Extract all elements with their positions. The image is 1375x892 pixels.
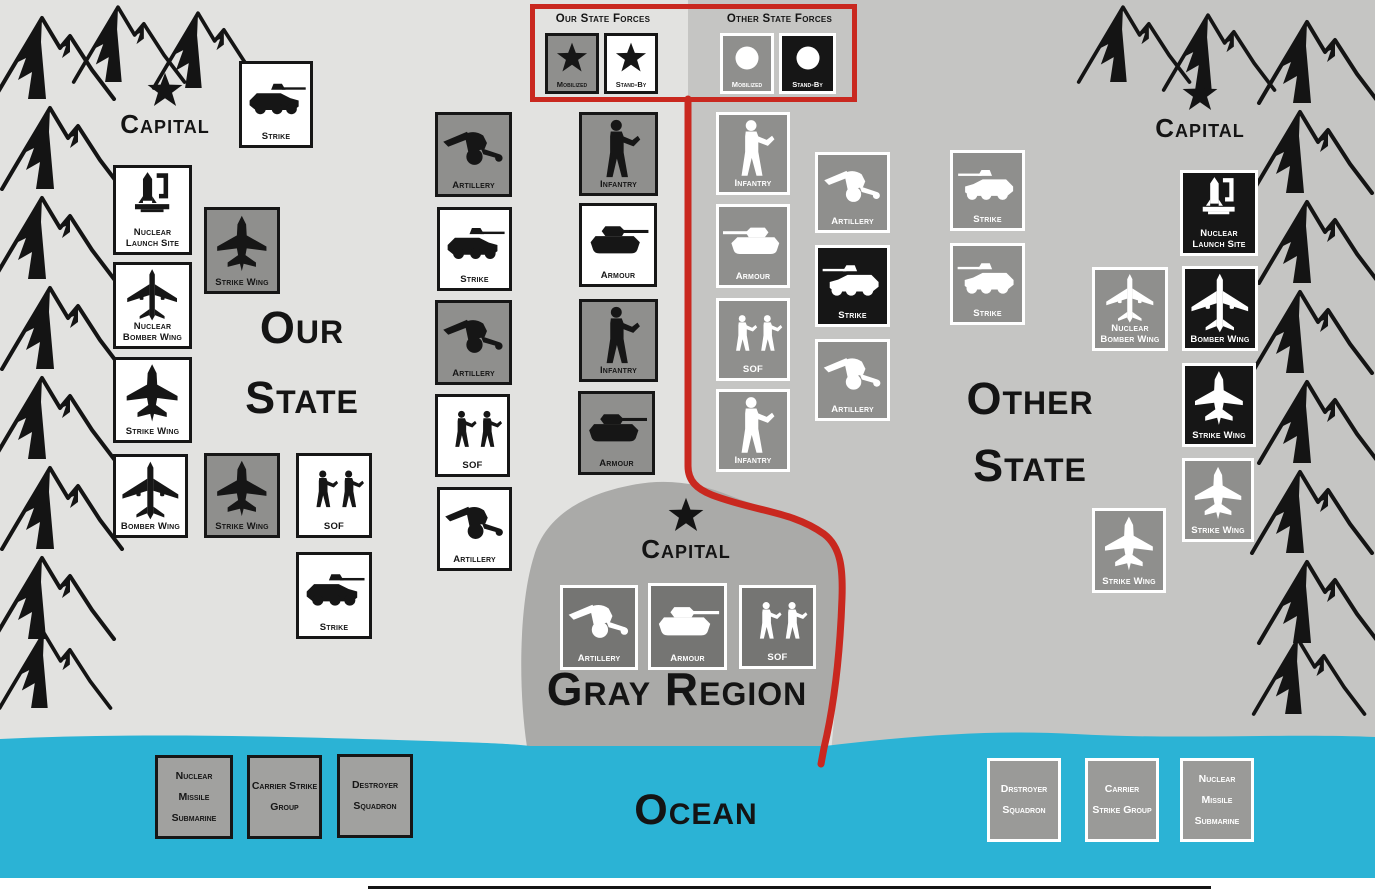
sof-icon [723,304,783,365]
unit-label: Nuclear Bomber Wing [116,322,189,346]
circle-icon [723,36,771,80]
bomber-wing-unit: Nuclear Bomber Wing [1092,267,1168,351]
ocean-label: Ocean [597,786,795,835]
legend-our-mobilized-swatch: Mobilized [545,33,599,94]
naval-unit-label-line: Strike Group [1092,800,1151,821]
capital-marker: Capital [620,497,752,565]
unit-label: Nuclear Launch Site [1183,229,1255,253]
legend: Our State Forces Other State Forces Mobi… [530,4,857,102]
unit-label: Strike [440,275,509,288]
unit-label: Infantry [719,456,787,469]
nuclear-launch-unit: Nuclear Launch Site [113,165,192,255]
unit-label: Infantry [582,366,655,379]
strike-wing-icon [1099,514,1159,577]
armour-icon [585,397,647,459]
artillery-icon [444,493,505,555]
infantry-icon [586,118,650,180]
strike-icon [822,251,883,311]
artillery-unit: Artillery [815,339,890,421]
strike-unit: Strike [296,552,372,639]
legend-swatch-label: Stand-By [782,80,833,91]
bomber-wing-icon [1099,273,1161,324]
unit-label: Artillery [818,217,887,230]
armour-unit: Armour [716,204,790,288]
naval-unit: CarrierStrike Group [1085,758,1159,842]
infantry-icon [723,395,783,456]
naval-unit-label-line: Drstroyer [1001,779,1047,800]
artillery-icon [442,118,504,181]
sof-unit: SOF [739,585,816,669]
naval-unit-label-line: Squadron [353,796,396,817]
unit-label: SOF [719,365,787,378]
unit-label: Strike [953,215,1022,228]
armour-icon [723,210,783,272]
strike-wing-unit: Strike Wing [1092,508,1166,593]
naval-unit: DestroyerSquadron [337,754,413,838]
star-icon [145,72,185,109]
naval-unit-label-line: Squadron [1002,800,1045,821]
bomber-wing-unit: Nuclear Bomber Wing [113,262,192,349]
strike-unit: Strike [950,243,1025,325]
strike-wing-icon [211,459,273,522]
naval-unit: NuclearMissileSubmarine [155,755,233,839]
unit-label: Armour [719,272,787,285]
strike-icon [444,213,505,275]
infantry-icon [723,118,783,179]
bottom-rule [368,886,1211,889]
strike-unit: Strike [950,150,1025,231]
strike-wing-unit: Strike Wing [113,357,192,443]
artillery-icon [822,345,883,405]
star-icon [548,36,596,80]
unit-label: Artillery [818,405,887,418]
unit-label: Nuclear Launch Site [116,228,189,252]
strike-wing-unit: Strike Wing [204,453,280,538]
naval-unit-label-line: Missile [1202,790,1233,811]
bomber-wing-icon [120,268,184,322]
legend-swatch-label: Stand-By [607,80,655,91]
legend-other-standby-swatch: Stand-By [779,33,836,94]
armour-icon [655,589,719,654]
strike-icon [303,558,365,623]
capital-marker: Capital [1135,76,1265,144]
capital-label: Capital [620,534,752,565]
strike-wing-icon [120,363,184,427]
gray-region-label: Gray Region [527,662,827,716]
strike-wing-icon [1189,464,1247,526]
circle-icon [782,36,833,80]
unit-label: Artillery [438,181,509,194]
unit-label: Bomber Wing [116,522,185,535]
artillery-unit: Artillery [560,585,638,670]
naval-unit-label-line: Carrier [1105,779,1139,800]
our-state-label: Our State [218,293,386,433]
unit-label: Artillery [563,654,635,667]
armour-unit: Armour [579,203,657,287]
strike-wing-unit: Strike Wing [204,207,280,294]
capital-marker: Capital [100,72,230,140]
infantry-unit: Infantry [716,112,790,195]
artillery-icon [567,591,630,654]
unit-label: Armour [582,271,654,284]
bomber-wing-icon [120,460,181,522]
sof-icon [746,591,808,653]
legend-other-mobilized-swatch: Mobilized [720,33,774,94]
infantry-unit: Infantry [579,112,658,196]
unit-label: Strike Wing [116,427,189,440]
legend-swatch-label: Mobilized [723,80,771,91]
unit-label: Artillery [440,555,509,568]
unit-label: Strike Wing [1185,526,1251,539]
naval-unit: NuclearMissileSubmarine [1180,758,1254,842]
bottom-margin [0,878,1375,892]
unit-label: Nuclear Bomber Wing [1095,324,1165,348]
infantry-unit: Infantry [579,299,658,382]
strike-unit: Strike [239,61,313,148]
unit-label: Strike Wing [1185,431,1253,444]
unit-label: Strike [818,311,887,324]
sof-unit: SOF [435,394,510,477]
strike-unit: Strike [437,207,512,291]
strike-wing-unit: Strike Wing [1182,363,1256,447]
artillery-unit: Artillery [815,152,890,233]
sof-unit: SOF [716,298,790,381]
sof-icon [442,400,503,461]
unit-label: Infantry [719,179,787,192]
naval-unit: DrstroyerSquadron [987,758,1061,842]
unit-label: Strike [242,132,310,145]
capital-label: Capital [100,109,230,140]
artillery-unit: Artillery [435,300,512,385]
strike-icon [246,67,306,132]
bomber-wing-unit: Bomber Wing [1182,266,1258,351]
strike-wing-unit: Strike Wing [1182,458,1254,542]
artillery-unit: Artillery [435,112,512,197]
infantry-icon [586,305,650,366]
naval-unit-label-line: Missile [179,787,210,808]
strike-wing-icon [211,213,273,278]
infantry-unit: Infantry [716,389,790,472]
star-icon [1180,76,1220,113]
naval-unit-label-line: Carrier Strike [252,776,317,797]
unit-label: Strike Wing [207,522,277,535]
armour-icon [586,209,649,271]
legend-other-title: Other State Forces [707,13,852,25]
artillery-icon [442,306,504,369]
capital-label: Capital [1135,113,1265,144]
unit-label: SOF [742,653,813,666]
star-icon [607,36,655,80]
naval-unit-label-line: Nuclear [176,766,213,787]
unit-label: Bomber Wing [1185,335,1255,348]
strike-wing-icon [1189,369,1249,431]
star-icon [666,497,706,534]
unit-label: Strike Wing [207,278,277,291]
unit-label: Strike Wing [1095,577,1163,590]
nuclear-launch-icon [120,171,184,228]
unit-label: Strike [299,623,369,636]
artillery-icon [822,158,883,217]
naval-unit-label-line: Submarine [1195,811,1240,832]
nuclear-launch-icon [1187,176,1250,229]
bomber-wing-unit: Bomber Wing [113,454,188,538]
unit-label: Strike [953,309,1022,322]
strike-unit: Strike [815,245,890,327]
naval-unit-label-line: Submarine [172,808,217,829]
bomber-wing-icon [1189,272,1251,335]
unit-label: Infantry [582,180,655,193]
legend-swatch-label: Mobilized [548,80,596,91]
sof-icon [303,459,365,522]
other-state-label: Other State [936,366,1124,499]
unit-label: SOF [438,461,507,474]
legend-our-title: Our State Forces [533,13,673,25]
strike-icon [957,156,1018,215]
naval-unit-label-line: Destroyer [352,775,398,796]
armour-unit: Armour [648,583,727,670]
strike-icon [957,249,1018,309]
unit-label: Artillery [438,369,509,382]
unit-label: Armour [651,654,724,667]
naval-unit-label-line: Nuclear [1199,769,1236,790]
unit-label: Armour [581,459,652,472]
naval-unit: Carrier StrikeGroup [247,755,322,839]
artillery-unit: Artillery [437,487,512,571]
sof-unit: SOF [296,453,372,538]
nuclear-launch-unit: Nuclear Launch Site [1180,170,1258,256]
unit-label: SOF [299,522,369,535]
armour-unit: Armour [578,391,655,475]
legend-our-standby-swatch: Stand-By [604,33,658,94]
map-stage: Our State Forces Other State Forces Mobi… [0,0,1375,892]
naval-unit-label-line: Group [270,797,298,818]
